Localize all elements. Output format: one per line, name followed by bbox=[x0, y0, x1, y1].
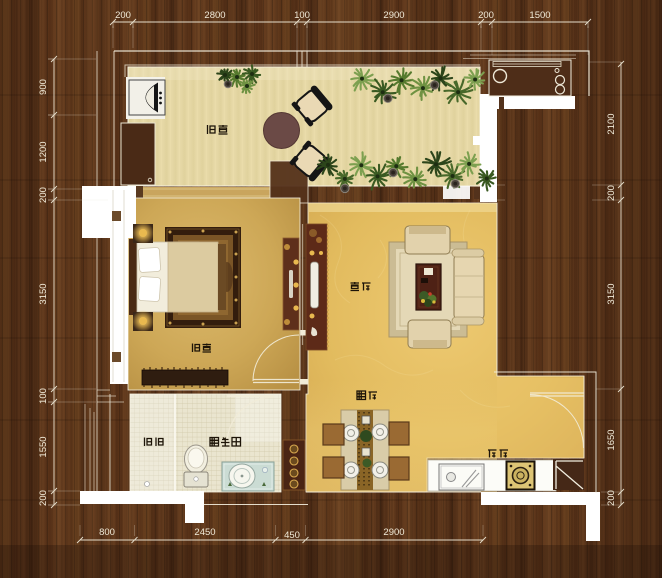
svg-text:3150: 3150 bbox=[606, 283, 617, 304]
svg-text:200: 200 bbox=[115, 10, 131, 21]
svg-text:900: 900 bbox=[38, 79, 49, 95]
svg-text:200: 200 bbox=[606, 185, 617, 201]
svg-text:2900: 2900 bbox=[383, 10, 404, 21]
svg-text:2100: 2100 bbox=[606, 113, 617, 134]
svg-text:800: 800 bbox=[99, 527, 115, 538]
svg-text:1200: 1200 bbox=[38, 141, 49, 162]
svg-text:3150: 3150 bbox=[38, 283, 49, 304]
svg-text:100: 100 bbox=[294, 10, 310, 21]
svg-text:450: 450 bbox=[284, 530, 300, 541]
svg-text:200: 200 bbox=[38, 490, 49, 506]
svg-text:1500: 1500 bbox=[529, 10, 550, 21]
svg-text:2450: 2450 bbox=[194, 527, 215, 538]
svg-text:1650: 1650 bbox=[606, 429, 617, 450]
svg-text:100: 100 bbox=[38, 388, 49, 404]
svg-text:2900: 2900 bbox=[383, 527, 404, 538]
svg-text:1550: 1550 bbox=[38, 436, 49, 457]
svg-text:200: 200 bbox=[606, 490, 617, 506]
svg-text:200: 200 bbox=[38, 187, 49, 203]
svg-text:200: 200 bbox=[478, 10, 494, 21]
svg-text:2800: 2800 bbox=[204, 10, 225, 21]
